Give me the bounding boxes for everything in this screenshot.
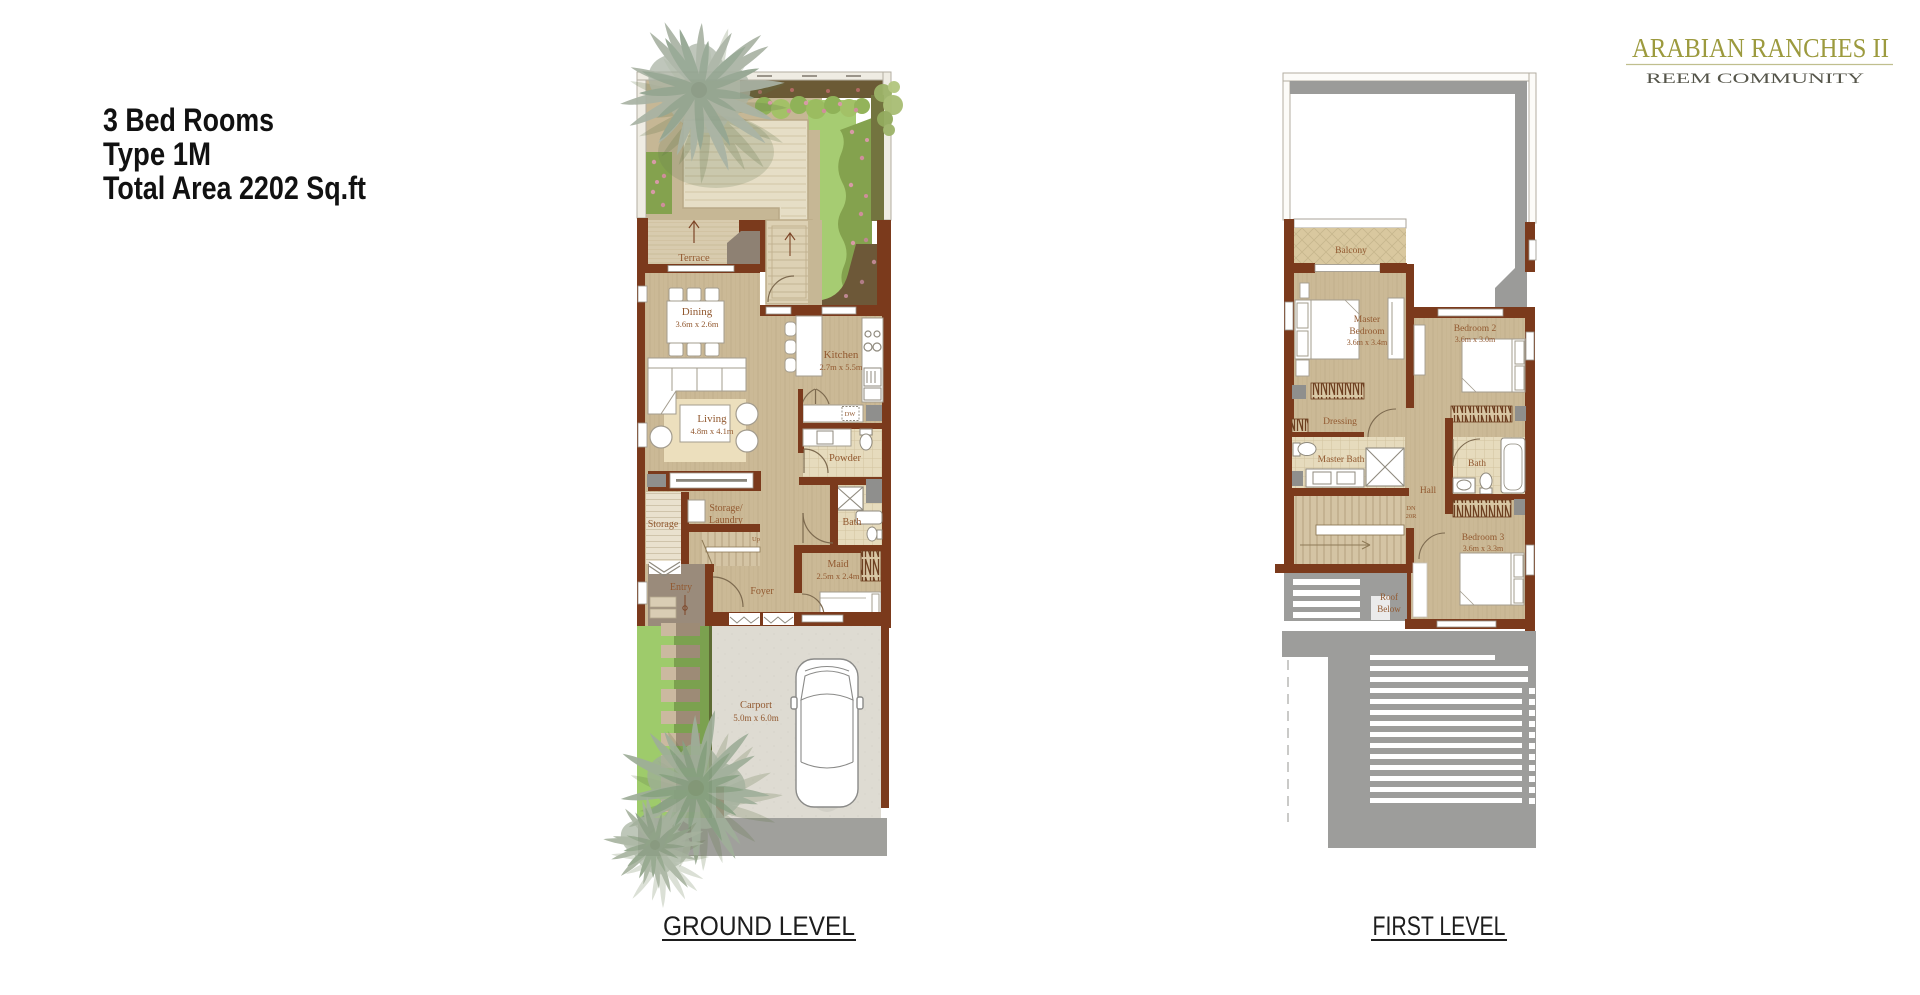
svg-text:Storage: Storage	[648, 519, 679, 530]
svg-text:Below: Below	[1377, 604, 1401, 614]
svg-text:Storage/: Storage/	[709, 503, 743, 514]
svg-text:Dressing: Dressing	[1323, 417, 1357, 427]
svg-text:Entry: Entry	[670, 582, 692, 593]
svg-text:Kitchen: Kitchen	[824, 349, 859, 361]
svg-text:Dining: Dining	[682, 306, 713, 318]
svg-text:Foyer: Foyer	[750, 586, 774, 597]
svg-text:3 Bed Rooms: 3 Bed Rooms	[103, 102, 274, 138]
svg-text:3.6m x 2.6m: 3.6m x 2.6m	[676, 319, 719, 329]
svg-text:Balcony: Balcony	[1335, 246, 1367, 256]
svg-text:Maid: Maid	[827, 559, 848, 570]
svg-text:4.8m x 4.1m: 4.8m x 4.1m	[691, 426, 734, 436]
svg-text:Up: Up	[752, 536, 760, 543]
svg-text:GROUND LEVEL: GROUND LEVEL	[663, 911, 855, 941]
svg-text:Bath: Bath	[843, 517, 862, 528]
svg-text:Bedroom 3: Bedroom 3	[1462, 533, 1505, 543]
svg-text:Master Bath: Master Bath	[1318, 455, 1365, 465]
svg-text:Carport: Carport	[740, 700, 772, 711]
svg-text:Hall: Hall	[1420, 486, 1437, 496]
svg-text:Total Area 2202 Sq.ft: Total Area 2202 Sq.ft	[103, 170, 366, 206]
svg-text:Powder: Powder	[829, 453, 862, 464]
svg-text:Roof: Roof	[1380, 592, 1398, 602]
svg-text:2.7m x 5.5m: 2.7m x 5.5m	[820, 362, 863, 372]
svg-text:Type 1M: Type 1M	[103, 136, 211, 172]
svg-text:Bedroom 2: Bedroom 2	[1454, 324, 1497, 334]
svg-text:Terrace: Terrace	[678, 253, 710, 264]
svg-text:REEM COMMUNITY: REEM COMMUNITY	[1646, 71, 1865, 87]
svg-text:FIRST LEVEL: FIRST LEVEL	[1373, 911, 1506, 941]
svg-text:20R: 20R	[1406, 513, 1418, 520]
svg-text:2.5m x 2.4m: 2.5m x 2.4m	[817, 571, 860, 581]
svg-text:Living: Living	[697, 413, 727, 425]
svg-text:5.0m x 6.0m: 5.0m x 6.0m	[733, 713, 779, 723]
svg-text:Master: Master	[1354, 315, 1381, 325]
svg-text:3.6m x 3.3m: 3.6m x 3.3m	[1463, 544, 1504, 553]
svg-text:DN: DN	[1406, 505, 1416, 512]
svg-text:3.6m x 3.0m: 3.6m x 3.0m	[1455, 335, 1496, 344]
svg-text:Bath: Bath	[1468, 459, 1486, 469]
svg-text:3.6m x 3.4m: 3.6m x 3.4m	[1347, 338, 1388, 347]
svg-text:Bedroom: Bedroom	[1349, 327, 1385, 337]
svg-text:ARABIAN RANCHES II: ARABIAN RANCHES II	[1632, 33, 1889, 63]
svg-text:DW: DW	[845, 411, 857, 418]
